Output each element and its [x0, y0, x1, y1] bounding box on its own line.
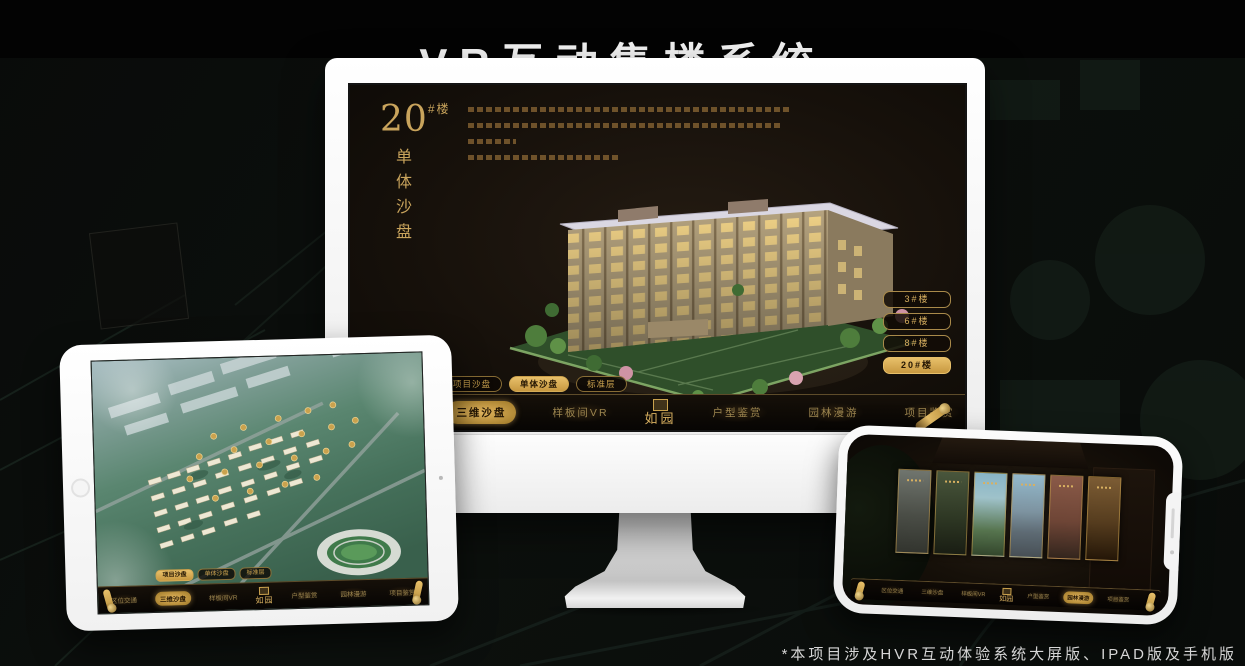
building-heading: 20#楼 单体沙盘 [380, 99, 451, 263]
sandbox-subtabs: 项目沙盘 单体沙盘 标准层 [442, 376, 627, 392]
gallery-card-interior[interactable] [1085, 476, 1121, 561]
phone-scroll-left-icon[interactable] [854, 581, 865, 599]
tablet-menu-item-garden-tour[interactable]: 园林漫游 [335, 586, 371, 601]
phone-screen: 区位交通 三维沙盘 样板间VR 如园 户型鉴赏 园林漫游 项目鉴赏 [842, 434, 1174, 616]
seal-icon [653, 399, 668, 411]
card-caption [1059, 485, 1075, 488]
floor-button-8[interactable]: 8#楼 [883, 335, 951, 352]
phone-menu-item-location[interactable]: 区位交通 [877, 584, 907, 597]
gallery-card-garden[interactable] [933, 470, 969, 555]
floor-button-3[interactable]: 3#楼 [883, 291, 951, 308]
seal-icon [259, 587, 269, 595]
floor-button-6[interactable]: 6#楼 [883, 313, 951, 330]
tablet-subtab-project-sandbox[interactable]: 项目沙盘 [155, 569, 193, 582]
poster-stage: VR互动售楼系统 20#楼 单体沙盘 [0, 0, 1245, 666]
phone-menu-item-garden-tour[interactable]: 园林漫游 [1063, 591, 1093, 604]
phone-camera-icon [1170, 550, 1174, 554]
card-caption [983, 482, 999, 485]
floor-button-group: 3#楼 6#楼 8#楼 20#楼 [883, 291, 951, 374]
building-number: 20 [380, 99, 428, 140]
card-caption [1096, 486, 1112, 489]
card-caption [907, 479, 923, 482]
interior-pergola-silhouette [932, 437, 1089, 469]
gallery-card-strip [895, 469, 1121, 561]
phone-menu-item-showroom-vr[interactable]: 样板间VR [957, 587, 990, 600]
phone-notch [1163, 492, 1181, 571]
card-caption [945, 480, 961, 483]
description-line [468, 107, 790, 112]
sandbox-mode-vertical-label: 单体沙盘 [390, 148, 414, 263]
phone-speaker-icon [1171, 508, 1175, 538]
phone-project-logo: 如园 [999, 587, 1014, 603]
phone-menu-item-project-gallery[interactable]: 项目鉴赏 [1103, 593, 1133, 606]
tablet-screen: 项目沙盘 单体沙盘 标准层 区位交通 三维沙盘 样板间VR 如园 户型鉴赏 园林… [91, 351, 430, 614]
floor-button-20[interactable]: 20#楼 [883, 357, 951, 374]
tablet-subtab-standard-floor[interactable]: 标准层 [239, 567, 271, 580]
tablet-scroll-right-icon[interactable] [412, 580, 424, 603]
poster-footnote: *本项目涉及HVR互动体验系统大屏版、IPAD版及手机版 [782, 643, 1237, 664]
phone-device: 区位交通 三维沙盘 样板间VR 如园 户型鉴赏 园林漫游 项目鉴赏 [833, 424, 1184, 625]
subtab-single-sandbox[interactable]: 单体沙盘 [509, 376, 569, 392]
description-line [468, 123, 780, 128]
seal-icon [1002, 587, 1011, 594]
menu-item-garden-tour[interactable]: 园林漫游 [799, 401, 869, 424]
menu-item-showroom-vr[interactable]: 样板间VR [542, 401, 618, 424]
gallery-card-courtyard[interactable] [895, 469, 931, 554]
tablet-subtab-single-sandbox[interactable]: 单体沙盘 [197, 568, 235, 581]
menu-item-3d-sandbox[interactable]: 三维沙盘 [446, 401, 516, 424]
phone-scroll-right-icon[interactable] [1145, 592, 1156, 610]
menu-item-unit-plans[interactable]: 户型鉴赏 [703, 401, 773, 424]
project-logo: 如园 [645, 399, 677, 426]
tablet-menu-item-unit-plans[interactable]: 户型鉴赏 [286, 587, 322, 602]
tablet-menu-item-3d-sandbox[interactable]: 三维沙盘 [155, 591, 191, 606]
gallery-card-landscape[interactable] [971, 471, 1007, 556]
tablet-project-logo: 如园 [255, 587, 273, 605]
card-caption [1021, 483, 1037, 486]
phone-menu-item-3d-sandbox[interactable]: 三维沙盘 [917, 586, 947, 599]
phone-menu-item-unit-plans[interactable]: 户型鉴赏 [1023, 590, 1053, 603]
gallery-card-autumn[interactable] [1047, 474, 1083, 559]
tablet-home-button[interactable] [71, 478, 91, 498]
tablet-device: 项目沙盘 单体沙盘 标准层 区位交通 三维沙盘 样板间VR 如园 户型鉴赏 园林… [59, 335, 459, 632]
subtab-standard-floor[interactable]: 标准层 [576, 376, 627, 392]
tablet-camera-icon [439, 476, 443, 480]
tablet-menu-item-showroom-vr[interactable]: 样板间VR [204, 590, 243, 605]
building-unit: #楼 [428, 102, 451, 116]
gallery-card-building[interactable] [1009, 473, 1045, 558]
